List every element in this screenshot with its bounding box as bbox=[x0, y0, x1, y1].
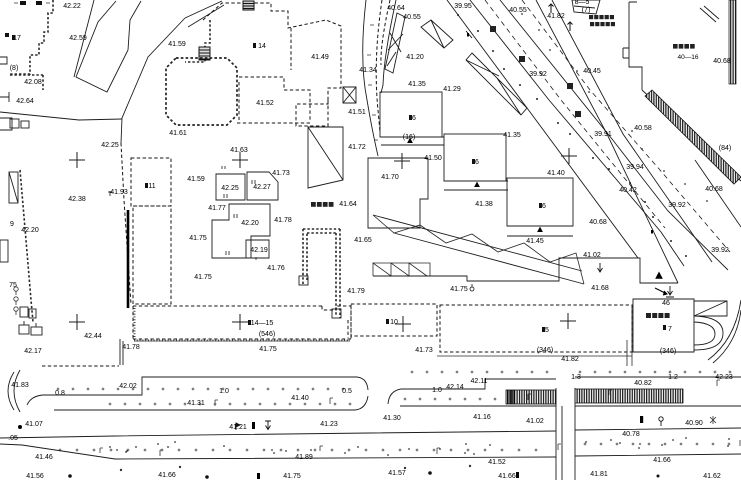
svg-text:40.45: 40.45 bbox=[583, 68, 601, 75]
svg-text:41.68: 41.68 bbox=[591, 285, 609, 292]
svg-text:40.68: 40.68 bbox=[705, 186, 723, 193]
svg-text:41.78: 41.78 bbox=[274, 217, 292, 224]
svg-text:41.02: 41.02 bbox=[583, 252, 601, 259]
svg-text:41.61: 41.61 bbox=[169, 130, 187, 137]
svg-text:6: 6 bbox=[412, 115, 416, 122]
svg-text:42.22: 42.22 bbox=[63, 3, 81, 10]
svg-text:.05: .05 bbox=[8, 435, 18, 442]
svg-text:41.65: 41.65 bbox=[354, 237, 372, 244]
svg-text:41.31: 41.31 bbox=[187, 400, 205, 407]
svg-text:41.52: 41.52 bbox=[488, 459, 506, 466]
svg-text:40.78: 40.78 bbox=[622, 431, 640, 438]
svg-text:14: 14 bbox=[258, 43, 266, 50]
svg-text:41.72: 41.72 bbox=[348, 144, 366, 151]
svg-text:41.59: 41.59 bbox=[168, 41, 186, 48]
svg-text:0.8: 0.8 bbox=[55, 390, 65, 397]
svg-text:41.21: 41.21 bbox=[229, 424, 247, 431]
svg-text:41.66: 41.66 bbox=[498, 473, 516, 480]
svg-text:41.49: 41.49 bbox=[311, 54, 329, 61]
svg-text:(346): (346) bbox=[660, 348, 676, 355]
svg-text:11: 11 bbox=[148, 183, 155, 190]
svg-text:41.02: 41.02 bbox=[526, 418, 544, 425]
svg-text:7: 7 bbox=[668, 326, 672, 333]
svg-text:6: 6 bbox=[475, 159, 479, 166]
svg-text:40.68: 40.68 bbox=[589, 219, 607, 226]
svg-text:41.63: 41.63 bbox=[230, 147, 248, 154]
svg-text:42.23: 42.23 bbox=[715, 374, 733, 381]
svg-text:41.59: 41.59 bbox=[187, 176, 205, 183]
svg-text:42.64: 42.64 bbox=[16, 98, 34, 105]
svg-text:41.70: 41.70 bbox=[381, 174, 399, 181]
svg-text:41.16: 41.16 bbox=[473, 414, 491, 421]
svg-text:41.78: 41.78 bbox=[122, 344, 140, 351]
svg-text:(8): (8) bbox=[10, 65, 19, 72]
svg-text:41.75: 41.75 bbox=[194, 274, 212, 281]
svg-text:41.79: 41.79 bbox=[347, 288, 365, 295]
svg-text:41.46: 41.46 bbox=[35, 454, 53, 461]
svg-text:41.20: 41.20 bbox=[406, 54, 424, 61]
svg-text:41.81: 41.81 bbox=[590, 471, 608, 478]
svg-text:41.45: 41.45 bbox=[526, 238, 544, 245]
svg-text:41.35: 41.35 bbox=[408, 81, 426, 88]
svg-text:41.75: 41.75 bbox=[259, 346, 277, 353]
svg-text:42.08: 42.08 bbox=[24, 79, 42, 86]
svg-text:41.30: 41.30 bbox=[383, 415, 401, 422]
svg-text:41.93: 41.93 bbox=[110, 189, 128, 196]
svg-text:41.56: 41.56 bbox=[26, 473, 44, 480]
svg-text:1.0: 1.0 bbox=[432, 387, 442, 394]
svg-text:40.55: 40.55 bbox=[509, 7, 527, 14]
svg-text:41.66: 41.66 bbox=[158, 472, 176, 479]
svg-text:5: 5 bbox=[545, 327, 549, 334]
svg-text:41.64: 41.64 bbox=[339, 201, 357, 208]
svg-text:41.82: 41.82 bbox=[547, 13, 565, 20]
svg-text:42.11: 42.11 bbox=[471, 378, 488, 385]
svg-text:39.92: 39.92 bbox=[529, 71, 547, 78]
svg-text:75: 75 bbox=[9, 282, 17, 289]
svg-text:42.17: 42.17 bbox=[24, 348, 42, 355]
svg-text:42.38: 42.38 bbox=[68, 196, 86, 203]
svg-text:39.92: 39.92 bbox=[711, 247, 729, 254]
svg-text:39.91: 39.91 bbox=[594, 131, 612, 138]
svg-text:40.55: 40.55 bbox=[403, 14, 421, 21]
svg-text:39.94: 39.94 bbox=[626, 164, 644, 171]
svg-text:40—16: 40—16 bbox=[678, 54, 699, 61]
svg-text:42.25: 42.25 bbox=[221, 185, 239, 192]
svg-text:41.75: 41.75 bbox=[283, 473, 301, 480]
svg-text:1.0: 1.0 bbox=[219, 388, 229, 395]
svg-text:8—5: 8—5 bbox=[575, 0, 590, 6]
svg-text:42.14: 42.14 bbox=[446, 384, 464, 391]
svg-text:41.50: 41.50 bbox=[424, 155, 442, 162]
svg-text:42.02: 42.02 bbox=[119, 383, 137, 390]
svg-text:41.83: 41.83 bbox=[11, 382, 29, 389]
svg-text:(84): (84) bbox=[719, 145, 731, 152]
svg-text:40.90: 40.90 bbox=[685, 420, 703, 427]
svg-text:42.44: 42.44 bbox=[84, 333, 102, 340]
svg-text:40.42: 40.42 bbox=[619, 187, 637, 194]
svg-text:41.07: 41.07 bbox=[25, 421, 43, 428]
svg-text:41.52: 41.52 bbox=[256, 100, 274, 107]
svg-text:9: 9 bbox=[10, 221, 14, 228]
svg-text:41.23: 41.23 bbox=[320, 421, 338, 428]
svg-text:(7): (7) bbox=[582, 7, 591, 14]
svg-text:42.59: 42.59 bbox=[69, 35, 87, 42]
svg-text:39.95: 39.95 bbox=[454, 3, 472, 10]
svg-text:46: 46 bbox=[662, 300, 670, 307]
svg-text:40.68: 40.68 bbox=[713, 58, 731, 65]
svg-text:(16): (16) bbox=[403, 134, 415, 141]
svg-text:41.82: 41.82 bbox=[561, 356, 579, 363]
svg-text:14—15: 14—15 bbox=[251, 320, 274, 327]
svg-text:41.34: 41.34 bbox=[359, 67, 377, 74]
svg-text:41.76: 41.76 bbox=[267, 265, 285, 272]
svg-text:(346): (346) bbox=[537, 347, 553, 354]
svg-text:41.66: 41.66 bbox=[653, 457, 671, 464]
svg-text:41.75: 41.75 bbox=[450, 286, 468, 293]
svg-text:42.19: 42.19 bbox=[250, 247, 268, 254]
svg-text:40.64: 40.64 bbox=[387, 5, 405, 12]
svg-text:42.25: 42.25 bbox=[101, 142, 119, 149]
svg-text:41.38: 41.38 bbox=[475, 201, 493, 208]
svg-text:42.20: 42.20 bbox=[241, 220, 259, 227]
svg-text:10: 10 bbox=[390, 319, 398, 326]
svg-text:41.75: 41.75 bbox=[189, 235, 207, 242]
svg-text:41.89: 41.89 bbox=[295, 454, 313, 461]
svg-text:42.27: 42.27 bbox=[253, 184, 271, 191]
svg-text:41.62: 41.62 bbox=[703, 473, 721, 480]
svg-text:41.51: 41.51 bbox=[348, 109, 366, 116]
svg-text:41.35: 41.35 bbox=[503, 132, 521, 139]
svg-text:41.77: 41.77 bbox=[208, 205, 226, 212]
svg-text:41.73: 41.73 bbox=[272, 170, 290, 177]
svg-text:41.73: 41.73 bbox=[415, 347, 433, 354]
svg-text:42.20: 42.20 bbox=[21, 227, 39, 234]
svg-text:41.40: 41.40 bbox=[547, 170, 565, 177]
svg-text:39.92: 39.92 bbox=[668, 202, 686, 209]
svg-text:1.2: 1.2 bbox=[668, 374, 678, 381]
svg-text:40.82: 40.82 bbox=[634, 380, 652, 387]
svg-text:0.5: 0.5 bbox=[342, 388, 352, 395]
svg-text:1.3: 1.3 bbox=[571, 374, 581, 381]
svg-text:41.57: 41.57 bbox=[388, 470, 406, 477]
svg-text:(546): (546) bbox=[259, 331, 275, 338]
svg-text:41.29: 41.29 bbox=[443, 86, 461, 93]
svg-text:6: 6 bbox=[542, 203, 546, 210]
svg-text:40.58: 40.58 bbox=[634, 125, 652, 132]
svg-text:41.40: 41.40 bbox=[291, 395, 309, 402]
